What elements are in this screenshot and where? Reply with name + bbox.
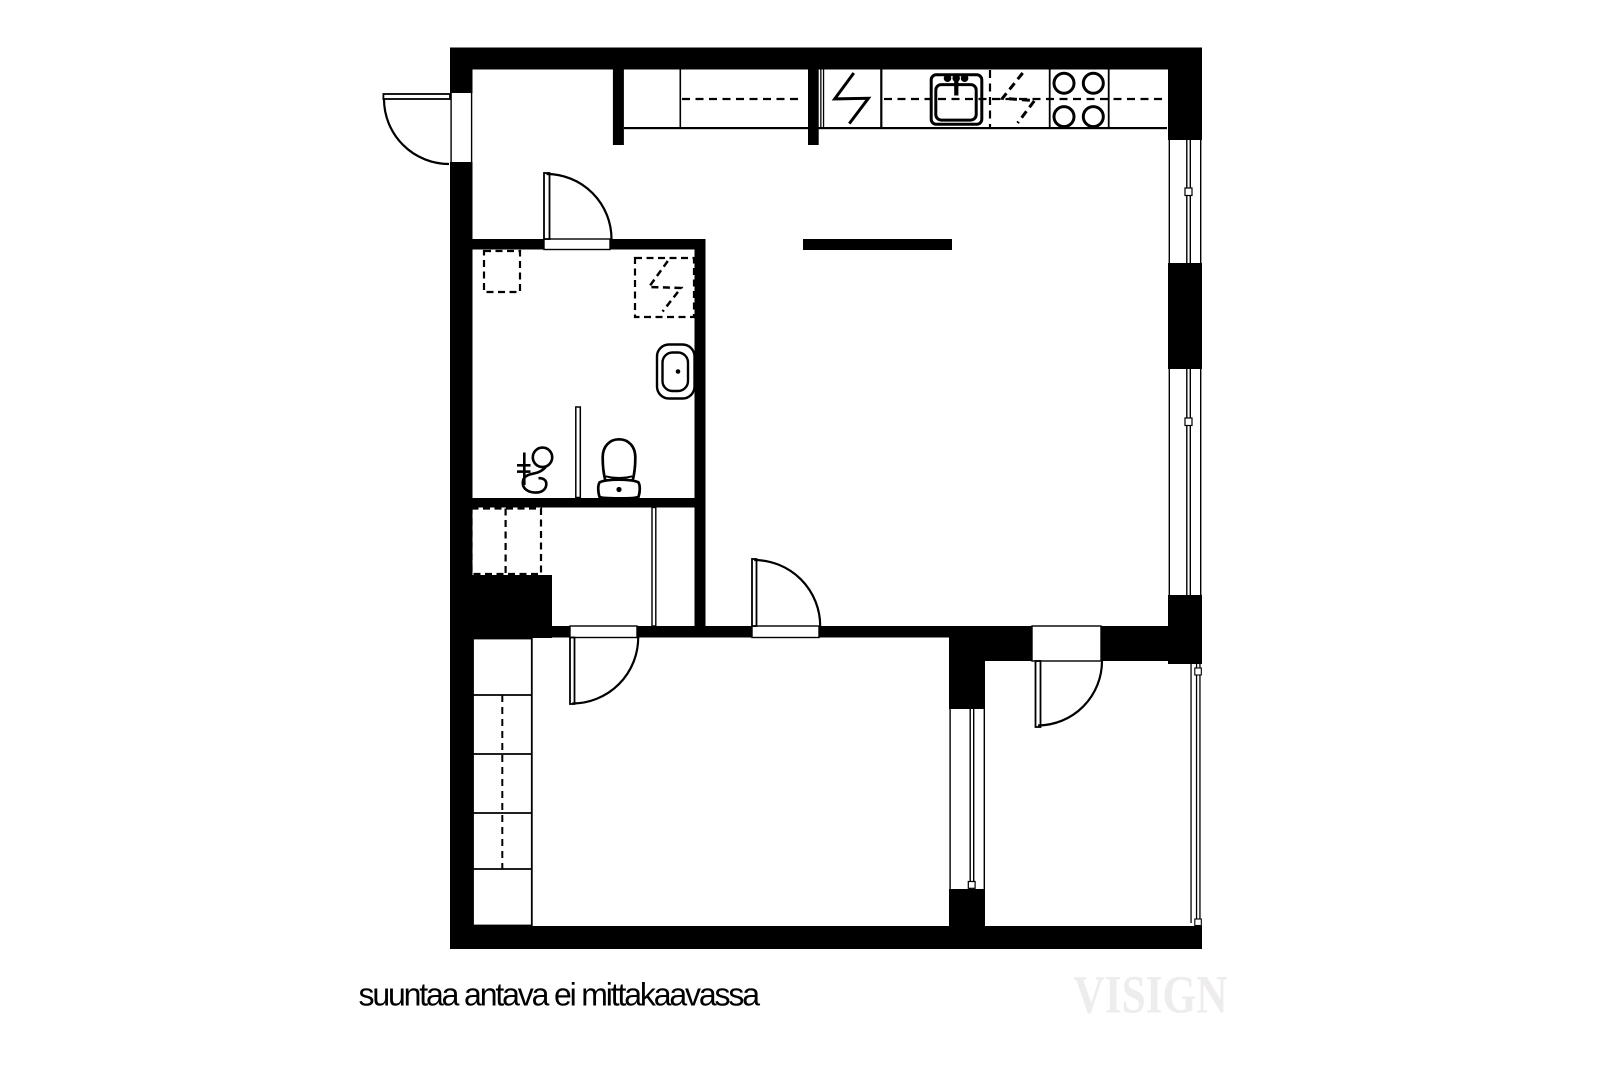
svg-text:VISIGN: VISIGN bbox=[1074, 965, 1228, 1025]
svg-text:suuntaa antava ei mittakaavass: suuntaa antava ei mittakaavassa bbox=[359, 977, 761, 1013]
